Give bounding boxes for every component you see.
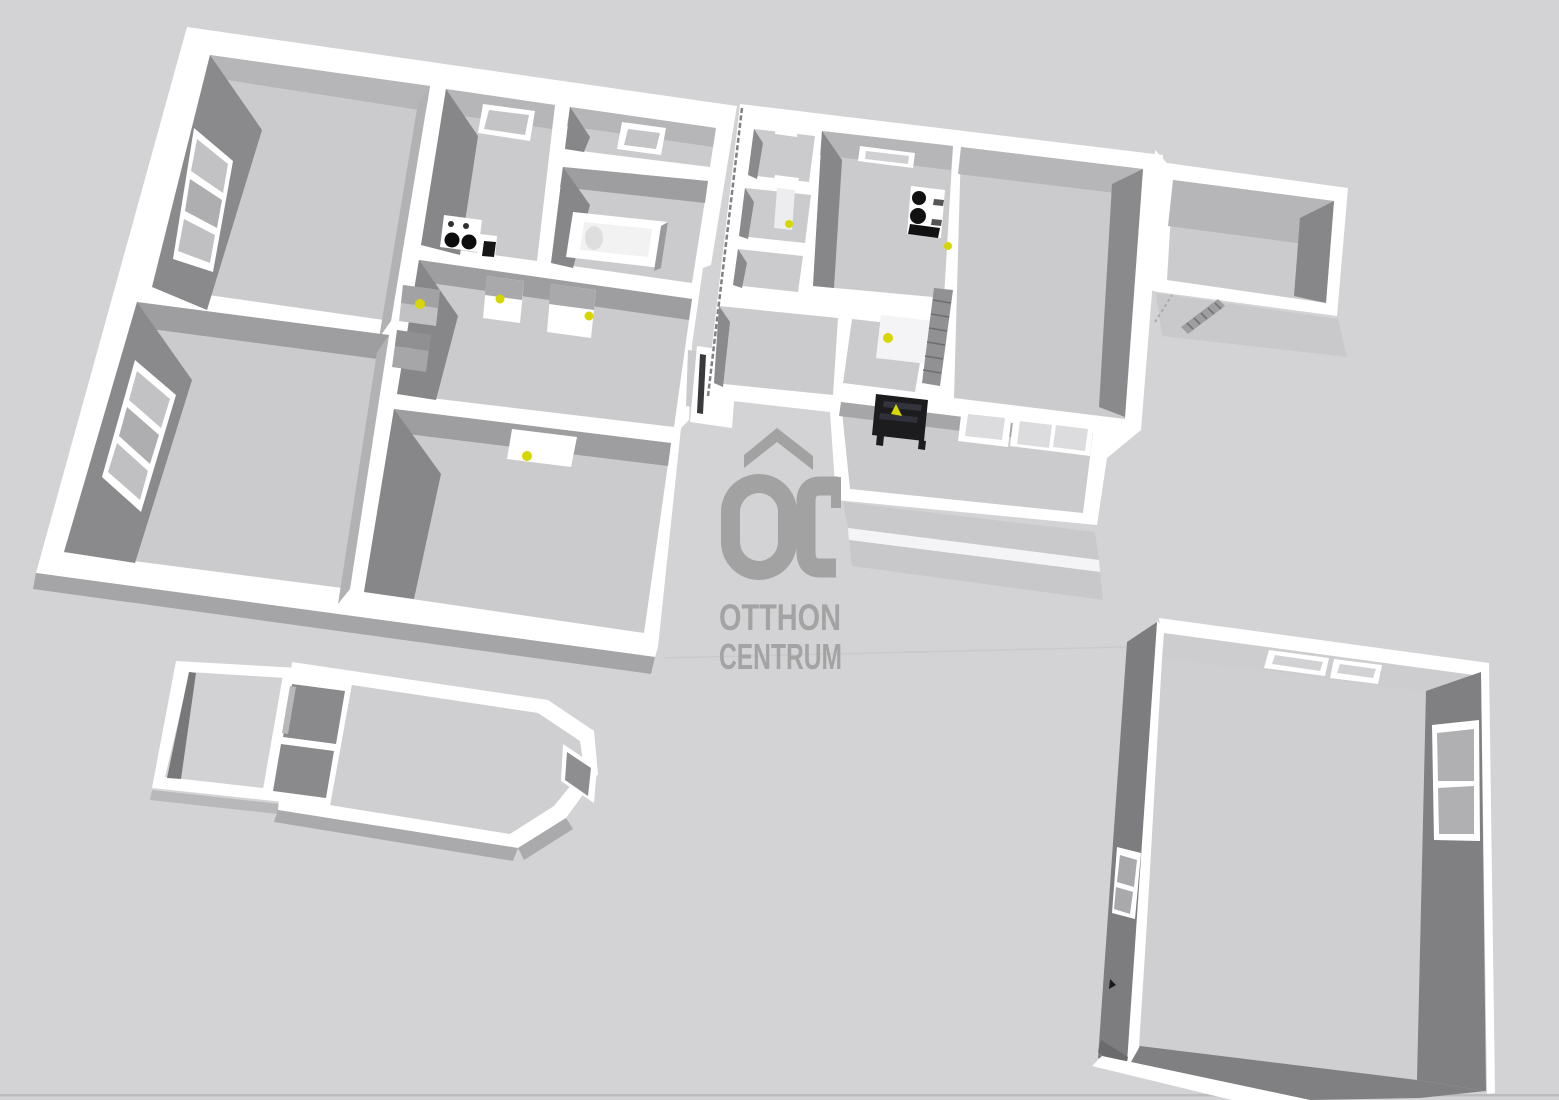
svg-text:CENTRUM: CENTRUM — [719, 636, 842, 677]
svg-text:OTTHON: OTTHON — [719, 597, 841, 638]
